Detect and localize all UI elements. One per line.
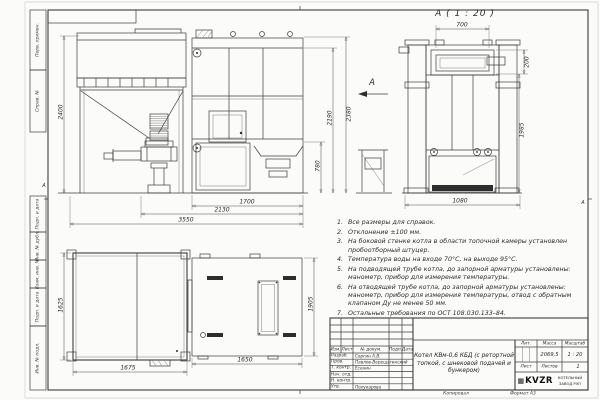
tb-sheets-value: 1 [576,364,579,370]
tb-header-list: Лист [342,347,353,352]
tb-sheet-label: Лист [521,365,532,370]
frame-label-inv-dubl: Инв. № дубл. [36,231,41,262]
frame-label-sprav-no: Справ. № [36,90,41,112]
top-view [67,250,302,366]
view-a [399,40,520,193]
note-item: 3.На боковой стенке котла в области топо… [334,238,590,254]
note-item: 6.На отводящей трубе котла, до запорной … [334,284,590,309]
logo-sub2: ЗАВОД РЭП [559,382,581,386]
sheet-edges [25,2,598,398]
tb-name-utv: Полукарова [355,385,381,390]
tb-role-nachotd: Нач. отд. [331,372,352,377]
tb-role-nkontr: Н. контр. [331,378,352,383]
dim-platform-height: 2400 [58,104,65,119]
tb-mass-value: 2069,5 [540,352,558,358]
tb-name-prov: Павлов-Верещагинский [355,360,408,365]
tb-mass-label: Масса [543,341,557,346]
note-item: 4.Температура воды на входе 70°С, на вых… [334,256,590,264]
dim-overall-width: 3550 [178,217,193,224]
tb-role-razrab: Разраб. [331,354,348,359]
document-title: Котел КВм-0,6 КБД (с ретортной топкой, с… [414,341,514,388]
format-label: Формат А3 [510,392,536,397]
dim-viewa-base: 1080 [452,198,467,205]
view-arrow-label: А [369,78,375,88]
dim-boiler-plan-depth: 1905 [308,296,315,311]
tb-scale-value: 1 : 20 [568,352,583,358]
dim-boiler-height: 2190 [327,110,334,125]
tb-lit-label: Лит. [521,341,531,346]
tb-name-razrab: Сергин А.В. [355,354,381,359]
tb-name-tkontr: Есенин [355,366,371,371]
frame-label-perv-primen: Перв. примен. [36,23,41,57]
tb-header-doc: № докум. [360,347,381,352]
dim-boiler-plan-width: 1650 [237,357,252,364]
note-item: 2.Отклонение ±100 мм. [334,229,590,237]
drawing-sheet: А ( 1 : 20 ) А А А 2400 2380 2190 780 17… [0,0,600,400]
tb-scale-label: Масштаб [565,341,585,346]
dim-feeder-height: 780 [315,160,322,171]
tb-header-data: Дата [402,347,413,352]
note-item: 5.На подводящей трубе котла, до запорной… [334,266,590,282]
tb-sheets-label: Листов [541,365,557,370]
dim-feeder-span: 2130 [214,207,229,214]
dim-platform-depth: 1625 [58,297,65,312]
zone-marker-right: А [581,200,584,206]
notes-list: 1.Все размеры для справок. 2.Отклонение … [334,219,590,319]
drawing-linework [0,0,600,400]
frame-label-vzam-inv: Взам. инв. № [36,259,41,290]
tb-header-podp: Подп. [389,347,402,352]
logo-kvzr: KVZR [525,376,553,386]
copy-label: Копировал [443,392,469,397]
tb-header-izm: Изм. [330,347,340,352]
tb-role-tkontr: Т. контр. [331,366,351,371]
zone-marker-left: А [42,183,45,189]
drawing-frame [30,6,592,394]
dim-viewa-top-width: 700 [456,22,467,29]
note-item: 7.Остальные требования по ОСТ 108.030.13… [334,310,590,318]
frame-label-inv-podl: Инв. № подл. [36,342,41,373]
note-item: 1.Все размеры для справок. [334,219,590,227]
tb-role-utv: Утв. [331,385,340,390]
view-a-title: А ( 1 : 20 ) [435,9,495,19]
logo-icon: ▦ [517,377,524,385]
dim-platform-width: 1675 [120,365,135,372]
logo-sub1: КОТЕЛЬНЫЙ [558,376,582,380]
dim-boiler-width: 1700 [239,199,254,206]
frame-label-podp-data-2: Подп. и дата [36,292,41,323]
dim-overall-height: 2380 [346,106,353,121]
front-view [77,29,388,193]
tb-role-prov: Пров. [331,360,344,365]
dim-viewa-body-height: 1985 [519,122,526,137]
dim-viewa-collar: 200 [524,56,531,67]
frame-label-podp-data-1: Подп. и дата [36,199,41,230]
